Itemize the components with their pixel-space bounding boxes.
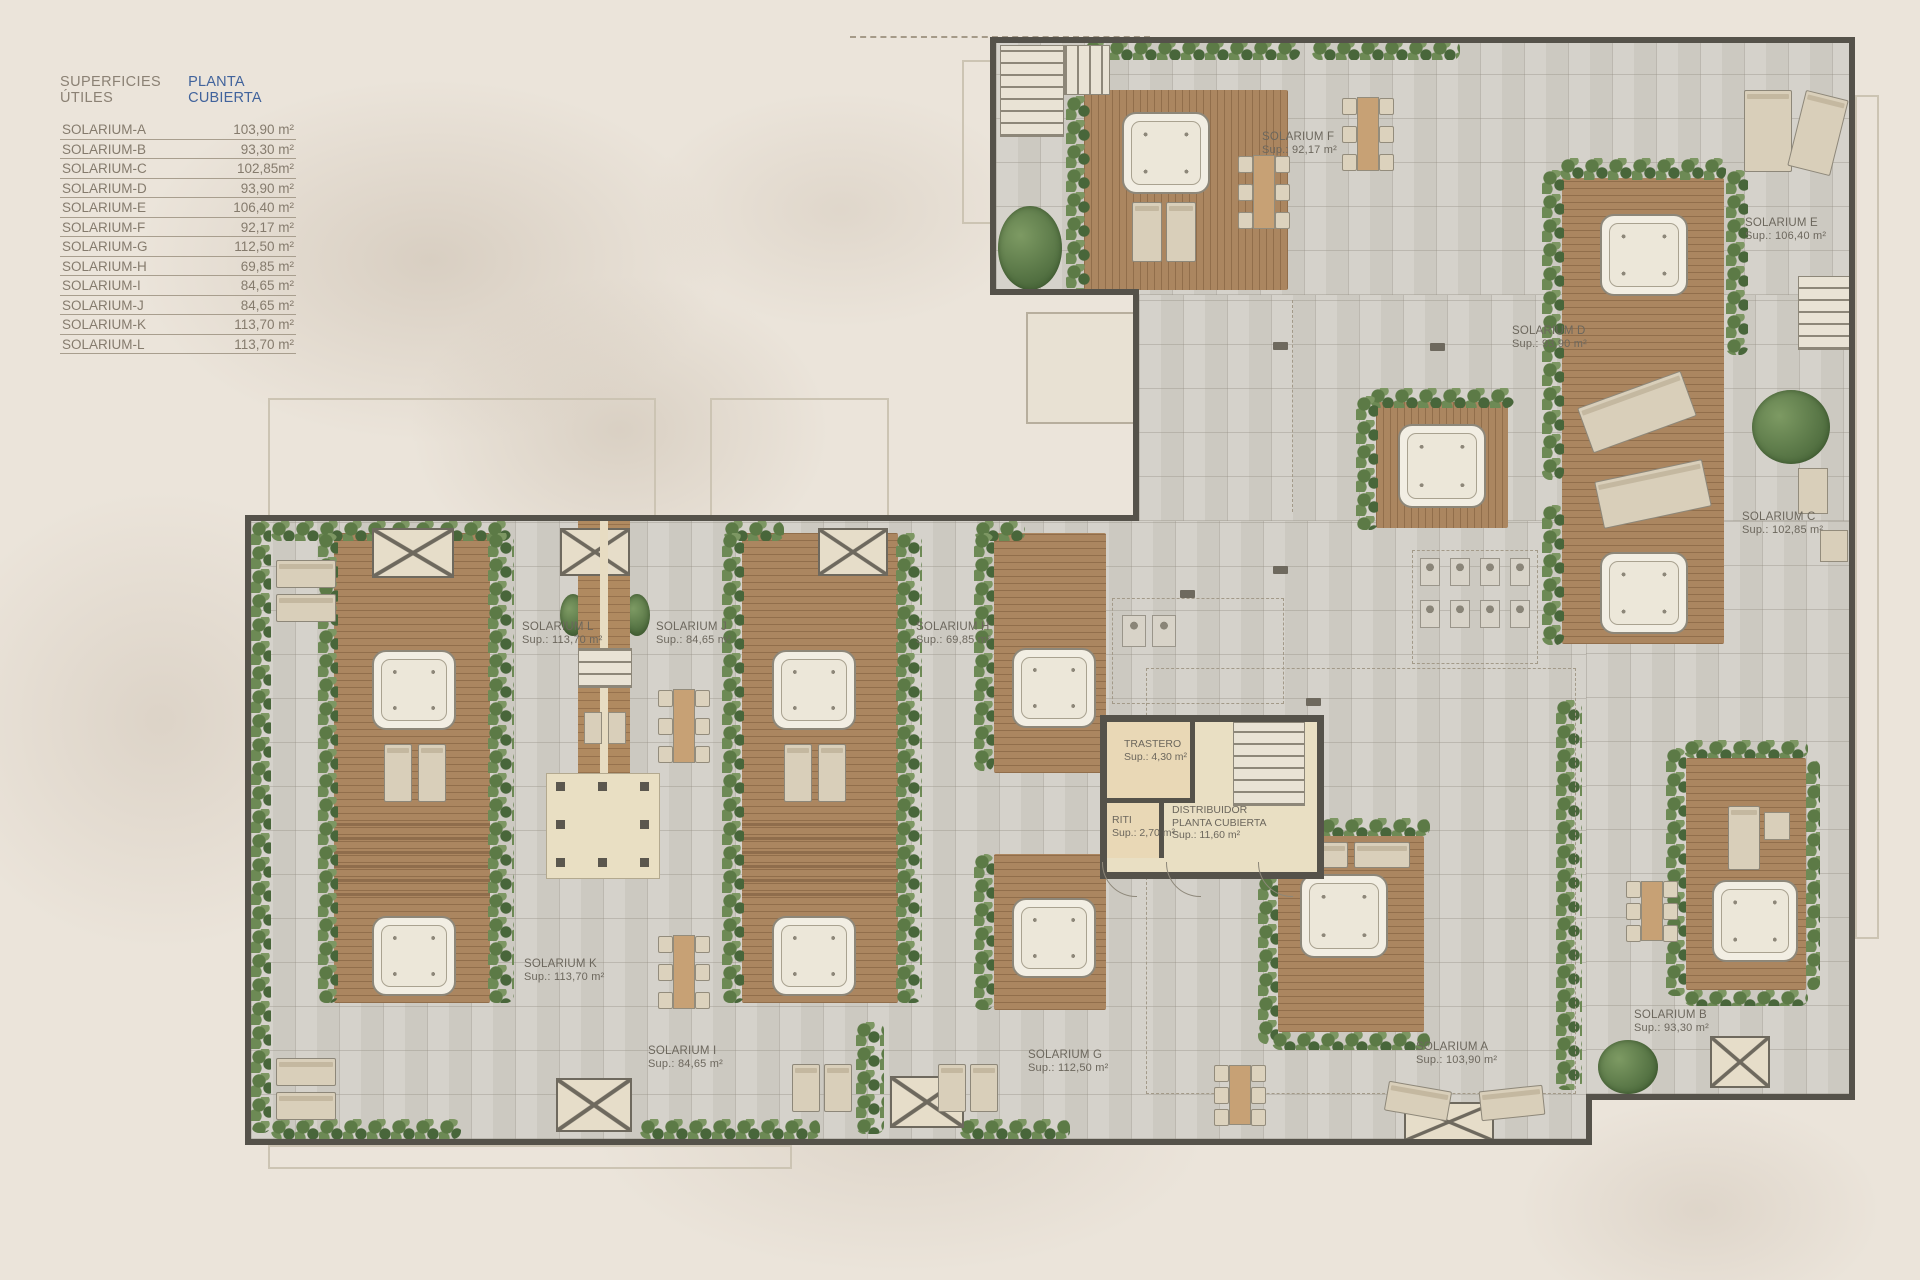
sun-lounger bbox=[824, 1064, 852, 1112]
hedge bbox=[1370, 388, 1514, 408]
bench bbox=[1480, 558, 1500, 586]
sun-lounger bbox=[276, 560, 336, 588]
dining-table bbox=[1216, 1060, 1262, 1130]
bench bbox=[1420, 558, 1440, 586]
bench bbox=[1450, 600, 1470, 628]
room-label-solarium-f: SOLARIUM FSup.: 92,17 m² bbox=[1262, 130, 1337, 157]
roof-hatch bbox=[1710, 1036, 1770, 1088]
hedge bbox=[1726, 170, 1748, 355]
jacuzzi-g bbox=[1012, 898, 1096, 978]
pergola-post bbox=[598, 782, 607, 791]
dining-table bbox=[1240, 150, 1286, 234]
jacuzzi-i bbox=[772, 916, 856, 996]
planter bbox=[608, 712, 626, 744]
roof-hatch bbox=[818, 528, 888, 576]
hedge bbox=[722, 533, 744, 1003]
pergola-post bbox=[556, 820, 565, 829]
pergola-post bbox=[640, 858, 649, 867]
roof-drain bbox=[1273, 566, 1288, 574]
room-label-solarium-e: SOLARIUM ESup.: 106,40 m² bbox=[1745, 216, 1826, 243]
wall bbox=[1849, 37, 1855, 1100]
legend-row: SOLARIUM-A103,90 m² bbox=[60, 120, 296, 140]
interior-wall bbox=[1107, 798, 1195, 803]
interior-wall bbox=[1190, 722, 1195, 802]
sun-lounger bbox=[276, 1092, 336, 1120]
plant-cluster bbox=[998, 206, 1062, 290]
hedge bbox=[960, 1119, 1070, 1139]
underlay-outline bbox=[1855, 95, 1879, 939]
jacuzzi-c bbox=[1600, 552, 1688, 634]
wall bbox=[990, 37, 1855, 43]
dining-table bbox=[1344, 92, 1390, 176]
hedge bbox=[488, 533, 514, 1003]
sun-lounger bbox=[1728, 806, 1760, 870]
bench bbox=[1510, 600, 1530, 628]
wall bbox=[245, 515, 1139, 521]
hedge bbox=[896, 533, 922, 1003]
roof-drain bbox=[1306, 698, 1321, 706]
hedge bbox=[251, 521, 271, 1133]
room-label-solarium-j: SOLARIUM JSup.: 84,65 m² bbox=[656, 620, 731, 647]
hedge bbox=[1312, 40, 1460, 60]
roof-drain bbox=[1430, 343, 1445, 351]
wall bbox=[1133, 295, 1139, 521]
jacuzzi-f bbox=[1122, 112, 1210, 194]
guide-line bbox=[1292, 300, 1293, 512]
hedge bbox=[1560, 158, 1726, 180]
room-label-solarium-a: SOLARIUM ASup.: 103,90 m² bbox=[1416, 1040, 1497, 1067]
jacuzzi-b bbox=[1712, 880, 1798, 962]
sun-lounger bbox=[1132, 202, 1162, 262]
core-stairs bbox=[1233, 722, 1305, 806]
underlay-outline bbox=[962, 60, 992, 224]
wall bbox=[990, 37, 996, 295]
room-label-distribuidor: DISTRIBUIDORPLANTA CUBIERTASup.: 11,60 m… bbox=[1172, 804, 1267, 842]
bench bbox=[1510, 558, 1530, 586]
hedge bbox=[856, 1022, 884, 1134]
legend-row: SOLARIUM-K113,70 m² bbox=[60, 315, 296, 335]
pergola-post bbox=[598, 858, 607, 867]
bench bbox=[1420, 600, 1440, 628]
room-label-solarium-b: SOLARIUM BSup.: 93,30 m² bbox=[1634, 1008, 1709, 1035]
legend-row: SOLARIUM-D93,90 m² bbox=[60, 179, 296, 199]
walkway-steps bbox=[578, 648, 632, 688]
jacuzzi-j bbox=[772, 650, 856, 730]
dining-table bbox=[1628, 876, 1674, 946]
side-table bbox=[1764, 812, 1790, 840]
hedge bbox=[1684, 990, 1808, 1006]
legend-row: SOLARIUM-I84,65 m² bbox=[60, 276, 296, 296]
plant-cluster bbox=[1598, 1040, 1658, 1094]
room-label-solarium-g: SOLARIUM GSup.: 112,50 m² bbox=[1028, 1048, 1108, 1075]
sun-lounger bbox=[938, 1064, 966, 1112]
jacuzzi-h bbox=[1012, 648, 1096, 728]
sun-lounger bbox=[418, 744, 446, 802]
dining-table bbox=[660, 930, 706, 1014]
stairs bbox=[1798, 276, 1854, 350]
hedge bbox=[974, 854, 994, 1010]
floor-plan-canvas: SOLARIUM FSup.: 92,17 m² SOLARIUM ESup.:… bbox=[0, 0, 1920, 1280]
hedge bbox=[1666, 748, 1686, 996]
sun-lounger bbox=[276, 1058, 336, 1086]
bench bbox=[1480, 600, 1500, 628]
jacuzzi-l bbox=[372, 650, 456, 730]
hedge bbox=[640, 1119, 820, 1139]
room-label-solarium-i: SOLARIUM ISup.: 84,65 m² bbox=[648, 1044, 723, 1071]
legend-row: SOLARIUM-H69,85 m² bbox=[60, 257, 296, 277]
hedge bbox=[1085, 40, 1300, 60]
roof-hatch bbox=[556, 1078, 632, 1132]
stairs bbox=[1000, 45, 1064, 137]
sun-lounger bbox=[1354, 842, 1410, 868]
underlay-outline bbox=[268, 398, 656, 520]
jacuzzi-e bbox=[1600, 214, 1688, 296]
sun-lounger bbox=[784, 744, 812, 802]
pergola-post bbox=[640, 782, 649, 791]
roof-drain bbox=[1180, 590, 1195, 598]
wall bbox=[990, 289, 1139, 295]
room-label-riti: RITISup.: 2,70 m² bbox=[1112, 814, 1175, 839]
legend-row: SOLARIUM-J84,65 m² bbox=[60, 296, 296, 316]
elevator-shaft-outline bbox=[1026, 312, 1137, 424]
pergola-post bbox=[556, 782, 565, 791]
room-label-solarium-k: SOLARIUM KSup.: 113,70 m² bbox=[524, 957, 604, 984]
pergola-slats bbox=[334, 816, 490, 896]
sun-lounger bbox=[384, 744, 412, 802]
bench bbox=[1152, 615, 1176, 647]
hedge bbox=[1684, 740, 1808, 758]
hedge bbox=[271, 1119, 461, 1139]
jacuzzi-a bbox=[1300, 874, 1388, 958]
pergola-post bbox=[556, 858, 565, 867]
bench bbox=[1450, 558, 1470, 586]
roof-drain bbox=[1273, 342, 1288, 350]
pergola-slats bbox=[742, 816, 898, 896]
sun-lounger bbox=[1744, 90, 1792, 172]
sun-lounger bbox=[792, 1064, 820, 1112]
legend-row: SOLARIUM-C102,85m² bbox=[60, 159, 296, 179]
room-label-trastero: TRASTEROSup.: 4,30 m² bbox=[1124, 738, 1187, 763]
hedge bbox=[1542, 505, 1564, 645]
legend-row: SOLARIUM-G112,50 m² bbox=[60, 237, 296, 257]
dining-table bbox=[660, 684, 706, 768]
jacuzzi-d bbox=[1398, 424, 1486, 508]
room-label-solarium-h: SOLARIUM HSup.: 69,85 m² bbox=[916, 620, 991, 647]
hedge bbox=[1806, 760, 1820, 990]
side-table bbox=[1798, 468, 1828, 514]
hedge bbox=[1066, 96, 1090, 292]
legend-subtitle: PLANTA CUBIERTA bbox=[188, 74, 296, 106]
wall bbox=[1592, 1094, 1855, 1100]
roof-hatch bbox=[372, 528, 454, 578]
wall bbox=[1586, 1094, 1592, 1145]
stairs bbox=[1064, 45, 1110, 95]
underlay-outline bbox=[710, 398, 889, 520]
hedge bbox=[1356, 396, 1378, 530]
legend-title: SUPERFICIES ÚTILES bbox=[60, 74, 188, 106]
hedge bbox=[974, 533, 994, 771]
room-label-solarium-d: SOLARIUM DSup.: 93,90 m² bbox=[1512, 324, 1587, 351]
sun-lounger bbox=[970, 1064, 998, 1112]
legend-header: SUPERFICIES ÚTILES PLANTA CUBIERTA bbox=[60, 74, 296, 106]
legend: SUPERFICIES ÚTILES PLANTA CUBIERTA SOLAR… bbox=[60, 74, 296, 354]
underlay-outline bbox=[268, 1145, 792, 1169]
side-table bbox=[1820, 530, 1848, 562]
pergola-post bbox=[640, 820, 649, 829]
sun-lounger bbox=[276, 594, 336, 622]
planter bbox=[584, 712, 602, 744]
roof-hatch bbox=[560, 528, 630, 576]
room-label-solarium-c: SOLARIUM CSup.: 102,85 m² bbox=[1742, 510, 1823, 537]
legend-row: SOLARIUM-B93,30 m² bbox=[60, 140, 296, 160]
wall bbox=[245, 1139, 1592, 1145]
wall bbox=[245, 515, 251, 1145]
legend-row: SOLARIUM-L113,70 m² bbox=[60, 335, 296, 355]
jacuzzi-k bbox=[372, 916, 456, 996]
sun-lounger bbox=[818, 744, 846, 802]
sun-lounger bbox=[1166, 202, 1196, 262]
legend-row: SOLARIUM-F92,17 m² bbox=[60, 218, 296, 238]
plant-cluster bbox=[1752, 390, 1830, 464]
bench bbox=[1122, 615, 1146, 647]
room-label-solarium-l: SOLARIUM LSup.: 113,70 m² bbox=[522, 620, 602, 647]
legend-row: SOLARIUM-E106,40 m² bbox=[60, 198, 296, 218]
